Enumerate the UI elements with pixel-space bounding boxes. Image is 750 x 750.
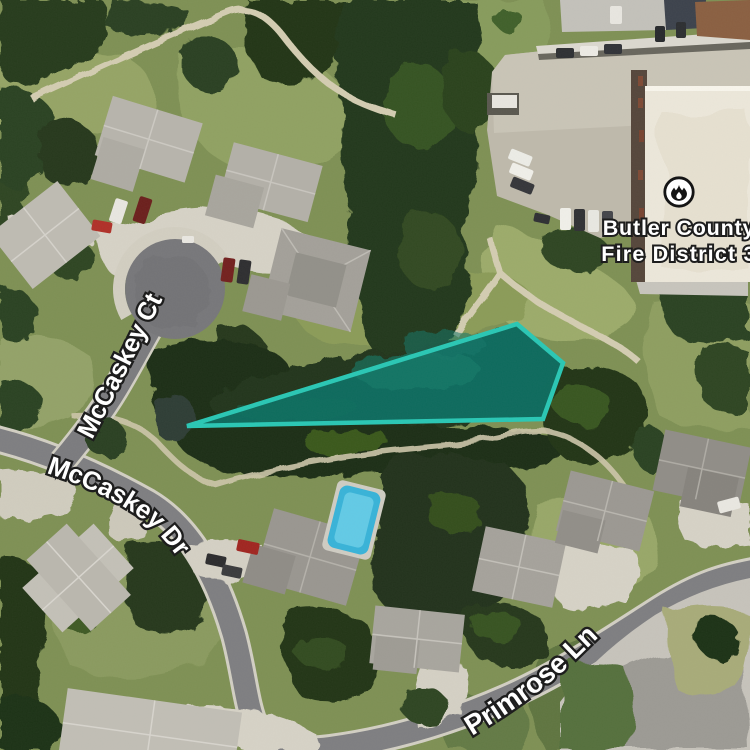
svg-text:Fire District 3: Fire District 3 bbox=[601, 242, 750, 266]
svg-text:Butler County: Butler County bbox=[603, 216, 750, 240]
